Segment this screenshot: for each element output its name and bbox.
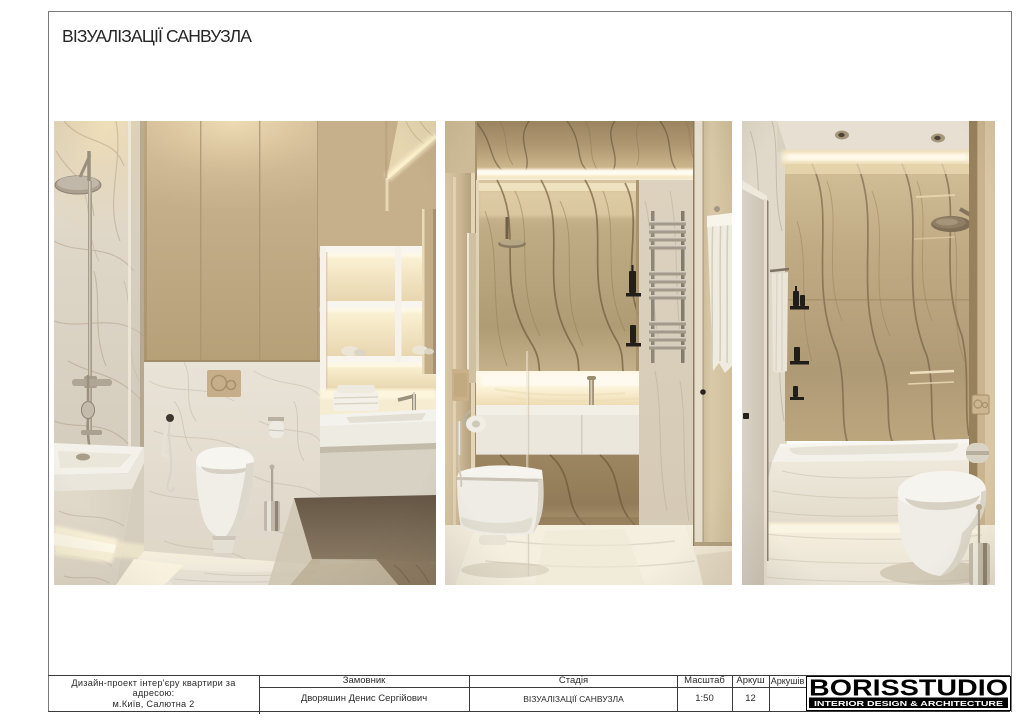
svg-text:BORISSTUDIO: BORISSTUDIO [809,676,1008,701]
svg-text:INTERIOR DESIGN & ARCHITECTURE: INTERIOR DESIGN & ARCHITECTURE [814,701,1003,708]
